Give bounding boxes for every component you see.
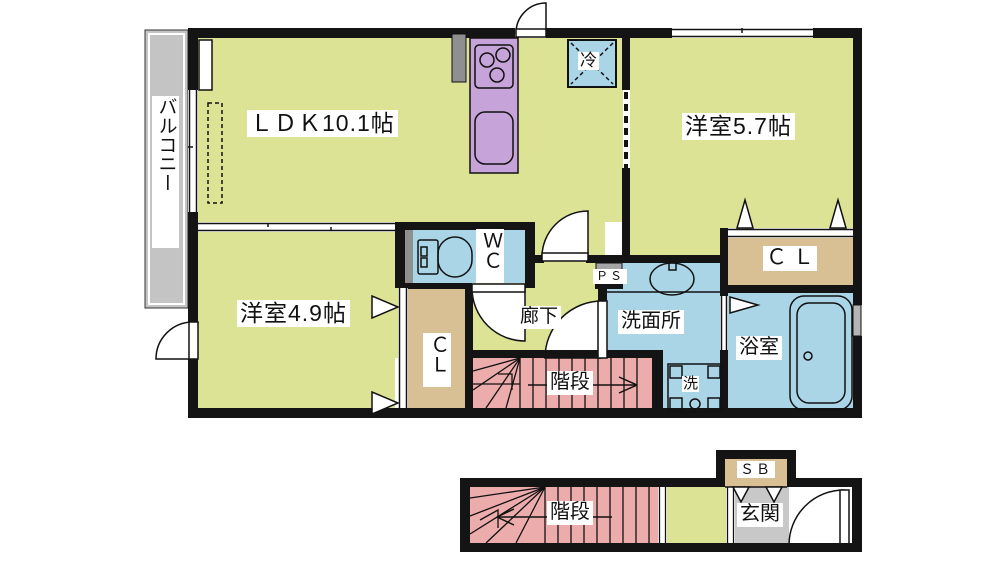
bathroom-window <box>853 305 861 336</box>
bedroom49-label: 洋室4.9帖 <box>237 300 350 327</box>
ldk-label: ＬＤＫ10.1帖 <box>247 110 398 137</box>
shoe-box-label: ＳＢ <box>737 461 775 478</box>
entrance-door-leaf <box>840 490 849 545</box>
pipe-space-label: ＰＳ <box>593 269 627 284</box>
entry-hall-area <box>667 487 726 543</box>
balcony-label: バルコニー <box>152 96 179 248</box>
wc-label: ＷＣ <box>476 229 504 283</box>
closet-south-label: ＣＬ <box>423 333 451 387</box>
wc-duct <box>405 230 413 283</box>
floor-plan: バルコニー ＬＤＫ10.1帖 洋室5.7帖 洋室4.9帖 ＷＣ ＣＬ Ｃ Ｌ 廊… <box>0 0 1000 562</box>
entrance-label: 玄関 <box>737 503 783 527</box>
washroom-label: 洗面所 <box>618 310 684 334</box>
ldk-pillar <box>199 40 212 90</box>
entrance-door-swing <box>789 490 844 545</box>
bedroom57-label: 洋室5.7帖 <box>682 113 795 140</box>
closet-east-label: Ｃ Ｌ <box>763 246 817 271</box>
laundry-label: 洗 <box>682 376 699 392</box>
bedroom57-area-lower <box>630 228 720 258</box>
stairs1f-label: 階段 <box>547 501 593 525</box>
stairs2f-label: 階段 <box>547 371 593 395</box>
hallway-label: 廊下 <box>517 306 561 329</box>
refrigerator-label: 冷 <box>578 52 599 70</box>
bathroom-label: 浴室 <box>736 336 782 360</box>
bedroom49-west-door-swing <box>156 322 193 359</box>
